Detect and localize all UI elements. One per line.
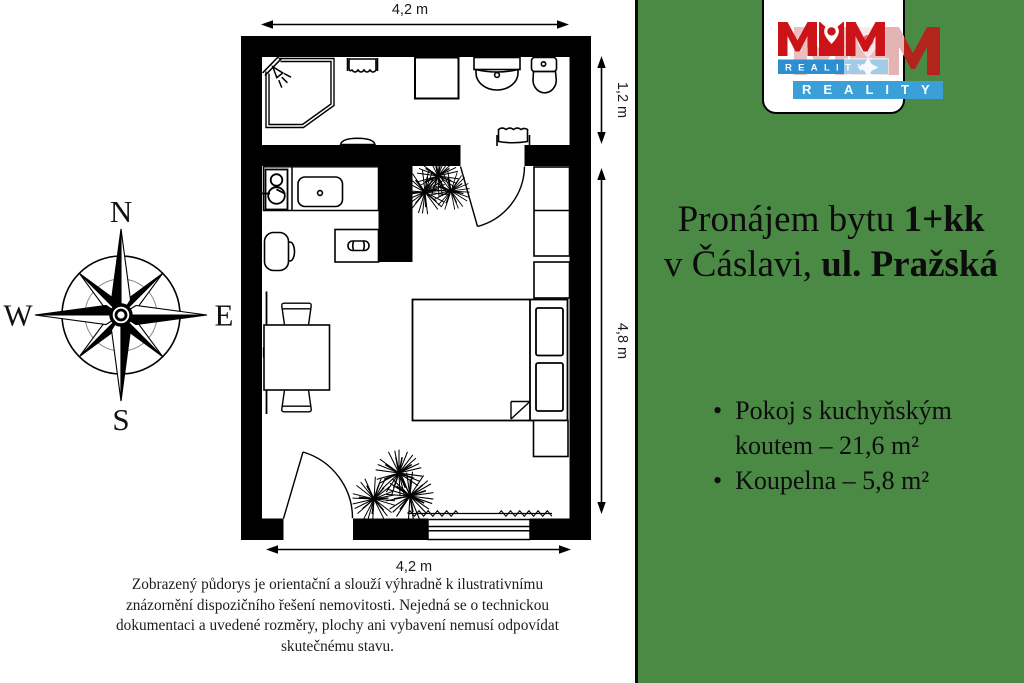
svg-text:4,2 m: 4,2 m bbox=[392, 2, 428, 18]
svg-text:4,2 m: 4,2 m bbox=[396, 559, 432, 575]
svg-text:S: S bbox=[112, 402, 129, 437]
svg-text:4,8 m: 4,8 m bbox=[614, 323, 630, 359]
svg-text:1,2 m: 1,2 m bbox=[614, 82, 630, 118]
svg-text:W: W bbox=[3, 298, 33, 333]
svg-text:N: N bbox=[110, 194, 132, 229]
svg-text:E: E bbox=[215, 298, 234, 333]
